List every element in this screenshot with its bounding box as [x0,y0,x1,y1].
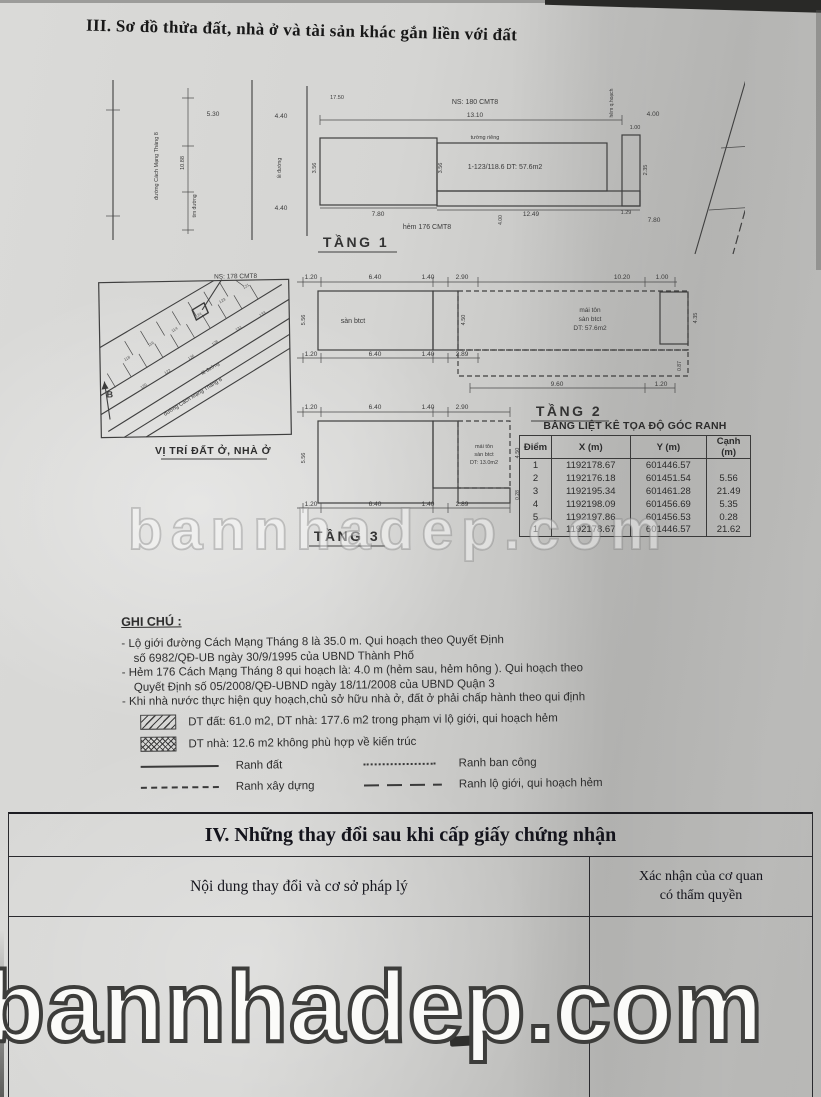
plot-number-label: 1-123/118.6 DT: 57.6m2 [468,164,543,171]
legend-cross-row: DT nhà: 12.6 m2 không phù hợp về kiến tr… [122,731,697,752]
floor1-label: TẦNG 1 [323,234,389,250]
f2-dim-2-89-b: 2.89 [456,351,469,358]
ns-180-label: NS: 180 CMT8 [452,99,498,106]
tuong-rieng-label: tường riêng [471,135,500,141]
legend-ranh-dat: Ranh đất [236,758,364,771]
parcel-number: 118 [123,354,132,362]
f3-dim-2-90-t: 2.90 [456,404,469,411]
street-name-label: đường Cách Mạng Tháng 8 [154,132,160,200]
subject-parcel-outline [192,303,208,320]
table-row: 31192195.34601461.2821.49 [520,485,751,498]
col-header-y: Y (m) [630,436,707,459]
parcel-number: 122 [163,367,172,375]
dotted-line-icon [364,763,436,766]
notes-heading: GHI CHÚ : [121,609,696,629]
dim-13-10: 13.10 [467,112,484,119]
f2-dim-1-40-t: 1.40 [422,274,435,281]
parcel-number: 124 [194,311,203,319]
map-caption: VỊ TRÍ ĐẤT Ở, NHÀ Ở [155,444,271,457]
hem-quyhoach-label: hẻm q.hoạch [609,88,615,117]
dim-7-80-b: 7.80 [648,217,661,224]
le-duong-label: lề đường [277,158,283,178]
dim-3-56-mid: 3.56 [438,163,444,174]
section4-title: IV. Những thay đổi sau khi cấp giấy chứn… [9,814,812,857]
dim-12-49: 12.49 [523,211,540,218]
f2-roof-line1: mái tôn [579,307,601,314]
watermark-bottom: bannhadep.com [0,950,821,1065]
legend-line-row-2: Ranh xây dựng Ranh lộ giới, qui hoạch hẻ… [141,776,698,794]
map-le-duong-label: lề đường [201,361,222,377]
dim-1-00: 1.00 [630,125,641,131]
dim-2-35: 2.35 [643,165,649,176]
f2-roof-line3: DT: 57.6m2 [573,325,607,332]
f2-dim-1-20-b: 1.20 [305,351,318,358]
dim-3-56-left: 3.56 [312,163,318,174]
dim-5-30: 5.30 [207,111,220,118]
table-header-row: Điểm X (m) Y (m) Cạnh (m) [520,436,751,459]
table-row: 21192176.18601451.545.56 [520,472,751,485]
scanned-land-certificate-page: { "title3": "III. Sơ đồ thửa đất, nhà ở … [0,0,821,1097]
parcel-number: 123 [218,296,227,304]
dim-4-00-hem: 4.00 [498,215,504,225]
dim-1-29: 1.29 [621,210,632,216]
legend-cross-label: DT nhà: 12.6 m2 không phù hợp về kiến tr… [188,735,416,749]
dim-10-88: 10.88 [180,156,186,170]
dim-4-40-top: 4.40 [275,113,288,120]
section4-col2-line2: có thẩm quyền [660,887,742,906]
hem-176-label: hẻm 176 CMT8 [403,224,451,231]
solid-line-icon [141,765,219,768]
dim-7-80-a: 7.80 [372,211,385,218]
f2-dim-0-87: 0.87 [677,361,683,371]
longdash-line-icon [364,783,442,786]
f2-dim-4-50: 4.50 [461,315,467,326]
f2-dim-6-40-t: 6.40 [369,274,382,281]
f2-dim-5-56: 5.56 [301,315,307,326]
location-map: NS: 178 CMT8 118116114124123121120122126… [99,272,292,437]
f2-dim-4-35: 4.35 [693,313,699,324]
f2-dim-1-20-t: 1.20 [305,274,318,281]
f3-dim-1-40-t: 1.40 [422,404,435,411]
section4-col2-line1: Xác nhận của cơ quan [639,868,763,887]
dim-4-00: 4.00 [647,111,660,118]
map-ns-label: NS: 178 CMT8 [214,273,257,281]
f3-roof-line2: sàn btct [474,452,494,458]
f3-roof-line3: DT: 13.0m2 [470,460,498,466]
f3-dim-6-40-t: 6.40 [369,404,382,411]
f2-dim-1-20-br: 1.20 [655,381,668,388]
legend-ranh-lo-gioi: Ranh lộ giới, qui hoạch hẻm [459,776,698,791]
legend-hatch-label: DT đất: 61.0 m2, DT nhà: 177.6 m2 trong … [188,712,558,728]
crosshatch-swatch-icon [140,736,176,751]
note-line: - Khi nhà nước thực hiện quy hoạch,chủ s… [122,690,697,708]
f3-dim-5-56: 5.56 [301,453,307,464]
section4-col2-header: Xác nhận của cơ quan có thẩm quyền [590,857,812,916]
f2-dim-2-90-t: 2.90 [456,274,469,281]
parcel-number: 131 [234,324,243,332]
floor2-plan: 1.20 6.40 1.40 2.90 10.20 1.00 sàn btct … [297,274,699,421]
f3-roof-line1: mái tôn [475,444,493,450]
floor1-plan: 5.30 10.88 tim đường đường Cách Mạng Thá… [106,60,745,254]
parcel-number: 121 [242,282,251,290]
map-street-label: đường Cách Mạng Tháng 8 [163,377,224,418]
table-row: 11192178.67601446.57 [520,459,751,472]
f2-dim-6-40-b: 6.40 [369,351,382,358]
section3-title: III. Sơ đồ thửa đất, nhà ở và tài sản kh… [86,16,646,49]
dim-17-50: 17.50 [330,95,344,101]
f2-dim-1-40-b: 1.40 [422,351,435,358]
parcel-number: 126 [187,353,196,361]
parcel-number: 116 [147,340,156,348]
photo-edge-top-right [545,0,821,16]
col-header-canh: Cạnh (m) [707,436,751,459]
f2-san-btct-label: sàn btct [341,318,366,325]
f2-dim-10-20-t: 10.20 [614,274,631,281]
col-header-x: X (m) [551,436,630,459]
parcel-number: 128 [211,338,220,346]
parcel-number: 114 [170,325,179,333]
dim-4-40-bottom: 4.40 [275,205,288,212]
notes-section: GHI CHÚ : - Lộ giới đường Cách Mạng Thán… [121,609,698,794]
map-north-label: B [107,389,114,399]
legend-ranh-ban-cong: Ranh ban công [459,755,698,770]
parcel-number: 133 [258,310,267,318]
section4-col1-header: Nội dung thay đổi và cơ sở pháp lý [9,857,590,916]
map-parcel-ticks [106,280,260,388]
f3-dim-1-20-t: 1.20 [305,404,318,411]
dashed-line-icon [141,786,219,789]
f2-dim-1-00-t: 1.00 [656,274,669,281]
tim-duong-label: tim đường [192,194,198,217]
parcel-number: 120 [139,382,148,390]
section4-header-row: Nội dung thay đổi và cơ sở pháp lý Xác n… [9,857,812,917]
col-header-diem: Điểm [520,436,552,459]
watermark-middle: bannhadep.com [128,497,728,563]
floor2-label: TẦNG 2 [536,403,602,419]
coordinate-table-title: BẢNG LIỆT KÊ TỌA ĐỘ GÓC RANH [519,420,751,432]
f2-roof-line2: sàn btct [579,316,602,323]
legend-hatch-row: DT đất: 61.0 m2, DT nhà: 177.6 m2 trong … [122,709,697,730]
legend-line-row-1: Ranh đất Ranh ban công [141,755,698,773]
f2-dim-9-60: 9.60 [551,381,564,388]
hatch-swatch-icon [140,714,176,729]
legend-ranh-xay-dung: Ranh xây dựng [236,779,364,792]
photo-edge-right [816,10,821,270]
north-arrow-icon [101,382,108,390]
